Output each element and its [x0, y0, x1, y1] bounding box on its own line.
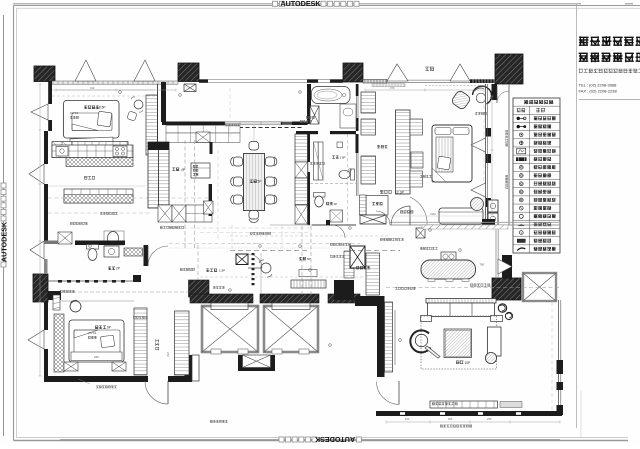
svg-text:AUTODESK: AUTODESK — [314, 435, 355, 444]
svg-text:370: 370 — [390, 86, 395, 90]
svg-text:8.5P: 8.5P — [99, 106, 106, 110]
svg-text:5P: 5P — [307, 257, 311, 261]
svg-text:5P: 5P — [258, 180, 262, 184]
svg-text:AUTODESK: AUTODESK — [280, 0, 321, 8]
svg-text:10P: 10P — [465, 361, 471, 365]
svg-text:1P: 1P — [334, 202, 338, 206]
svg-text:2P: 2P — [116, 267, 120, 271]
svg-text:250: 250 — [487, 417, 492, 421]
svg-text:4P: 4P — [181, 168, 185, 172]
svg-text:310: 310 — [90, 86, 95, 90]
svg-text:TEL : (02) 2208-3088: TEL : (02) 2208-3088 — [579, 83, 618, 88]
svg-text:270: 270 — [166, 352, 170, 357]
svg-text:240: 240 — [94, 355, 99, 359]
svg-text:1.5P: 1.5P — [219, 269, 225, 273]
svg-text:FAX : (02) 2208-2238: FAX : (02) 2208-2238 — [579, 89, 618, 94]
svg-text:9P: 9P — [107, 326, 111, 330]
svg-text:700: 700 — [480, 263, 485, 267]
svg-text:1.5P: 1.5P — [340, 156, 346, 160]
svg-text:W6*D3: W6*D3 — [70, 111, 79, 115]
svg-text:AUTODESK: AUTODESK — [0, 221, 9, 262]
svg-text:3140: 3140 — [430, 212, 436, 216]
svg-text:12.3P: 12.3P — [395, 190, 405, 194]
svg-text:160: 160 — [405, 417, 410, 421]
svg-text:905: 905 — [448, 417, 453, 421]
svg-text:W6*D3: W6*D3 — [88, 331, 97, 335]
